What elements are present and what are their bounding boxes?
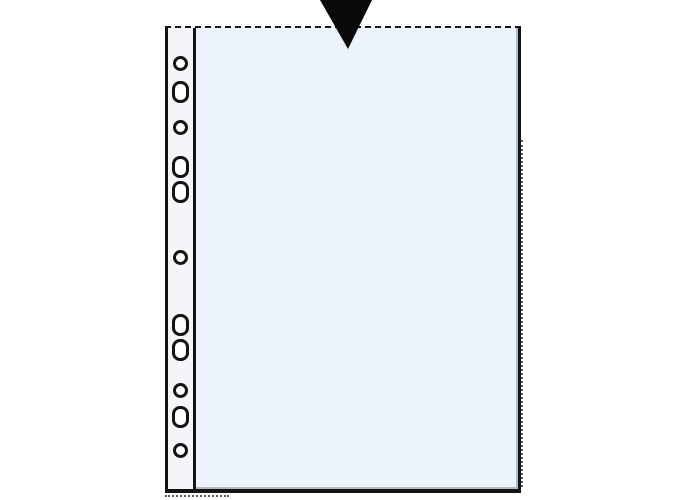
welded-edge-serration-right — [521, 140, 523, 487]
pocket-illustration — [0, 0, 700, 500]
punched-filing-strip — [168, 28, 196, 489]
pocket-body — [196, 28, 518, 489]
punched-pocket — [165, 26, 521, 493]
welded-edge-serration-bottom — [165, 495, 229, 497]
